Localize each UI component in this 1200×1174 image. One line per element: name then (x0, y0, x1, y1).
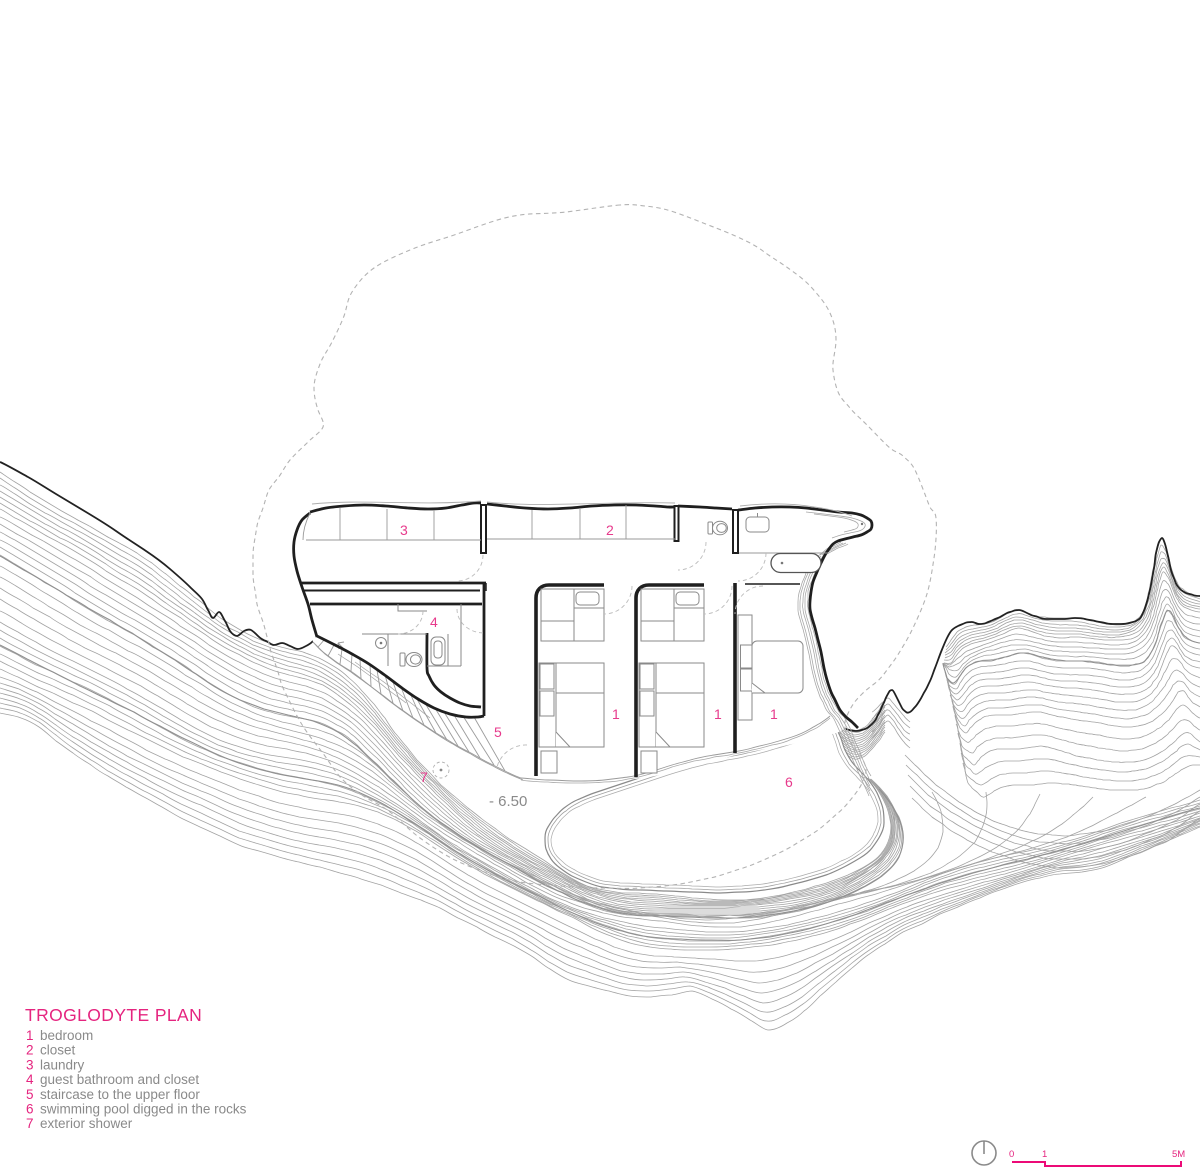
svg-text:0: 0 (1009, 1149, 1014, 1160)
svg-text:exterior shower: exterior shower (40, 1116, 133, 1131)
svg-text:2: 2 (26, 1043, 34, 1058)
svg-text:5: 5 (494, 724, 502, 740)
svg-text:4: 4 (430, 614, 438, 630)
svg-text:closet: closet (40, 1043, 76, 1058)
svg-text:swimming pool digged in the ro: swimming pool digged in the rocks (40, 1102, 247, 1117)
svg-text:2: 2 (606, 522, 614, 538)
svg-text:5M: 5M (1172, 1149, 1185, 1160)
svg-text:6: 6 (785, 774, 793, 790)
svg-text:1: 1 (612, 706, 620, 722)
svg-text:guest bathroom and closet: guest bathroom and closet (40, 1072, 199, 1087)
svg-text:1: 1 (1042, 1149, 1047, 1160)
svg-text:7: 7 (26, 1116, 34, 1131)
svg-text:laundry: laundry (40, 1057, 85, 1072)
svg-text:3: 3 (400, 522, 408, 538)
svg-text:5: 5 (26, 1087, 34, 1102)
svg-text:7: 7 (420, 769, 428, 785)
svg-text:staircase to the upper floor: staircase to the upper floor (40, 1087, 200, 1102)
svg-text:6: 6 (26, 1102, 34, 1117)
svg-text:1: 1 (714, 706, 722, 722)
svg-text:TROGLODYTE PLAN: TROGLODYTE PLAN (25, 1005, 202, 1025)
svg-text:- 6.50: - 6.50 (489, 793, 527, 810)
svg-text:4: 4 (26, 1072, 34, 1087)
svg-text:1: 1 (26, 1028, 34, 1043)
svg-text:1: 1 (770, 706, 778, 722)
svg-text:3: 3 (26, 1057, 34, 1072)
svg-text:bedroom: bedroom (40, 1028, 93, 1043)
